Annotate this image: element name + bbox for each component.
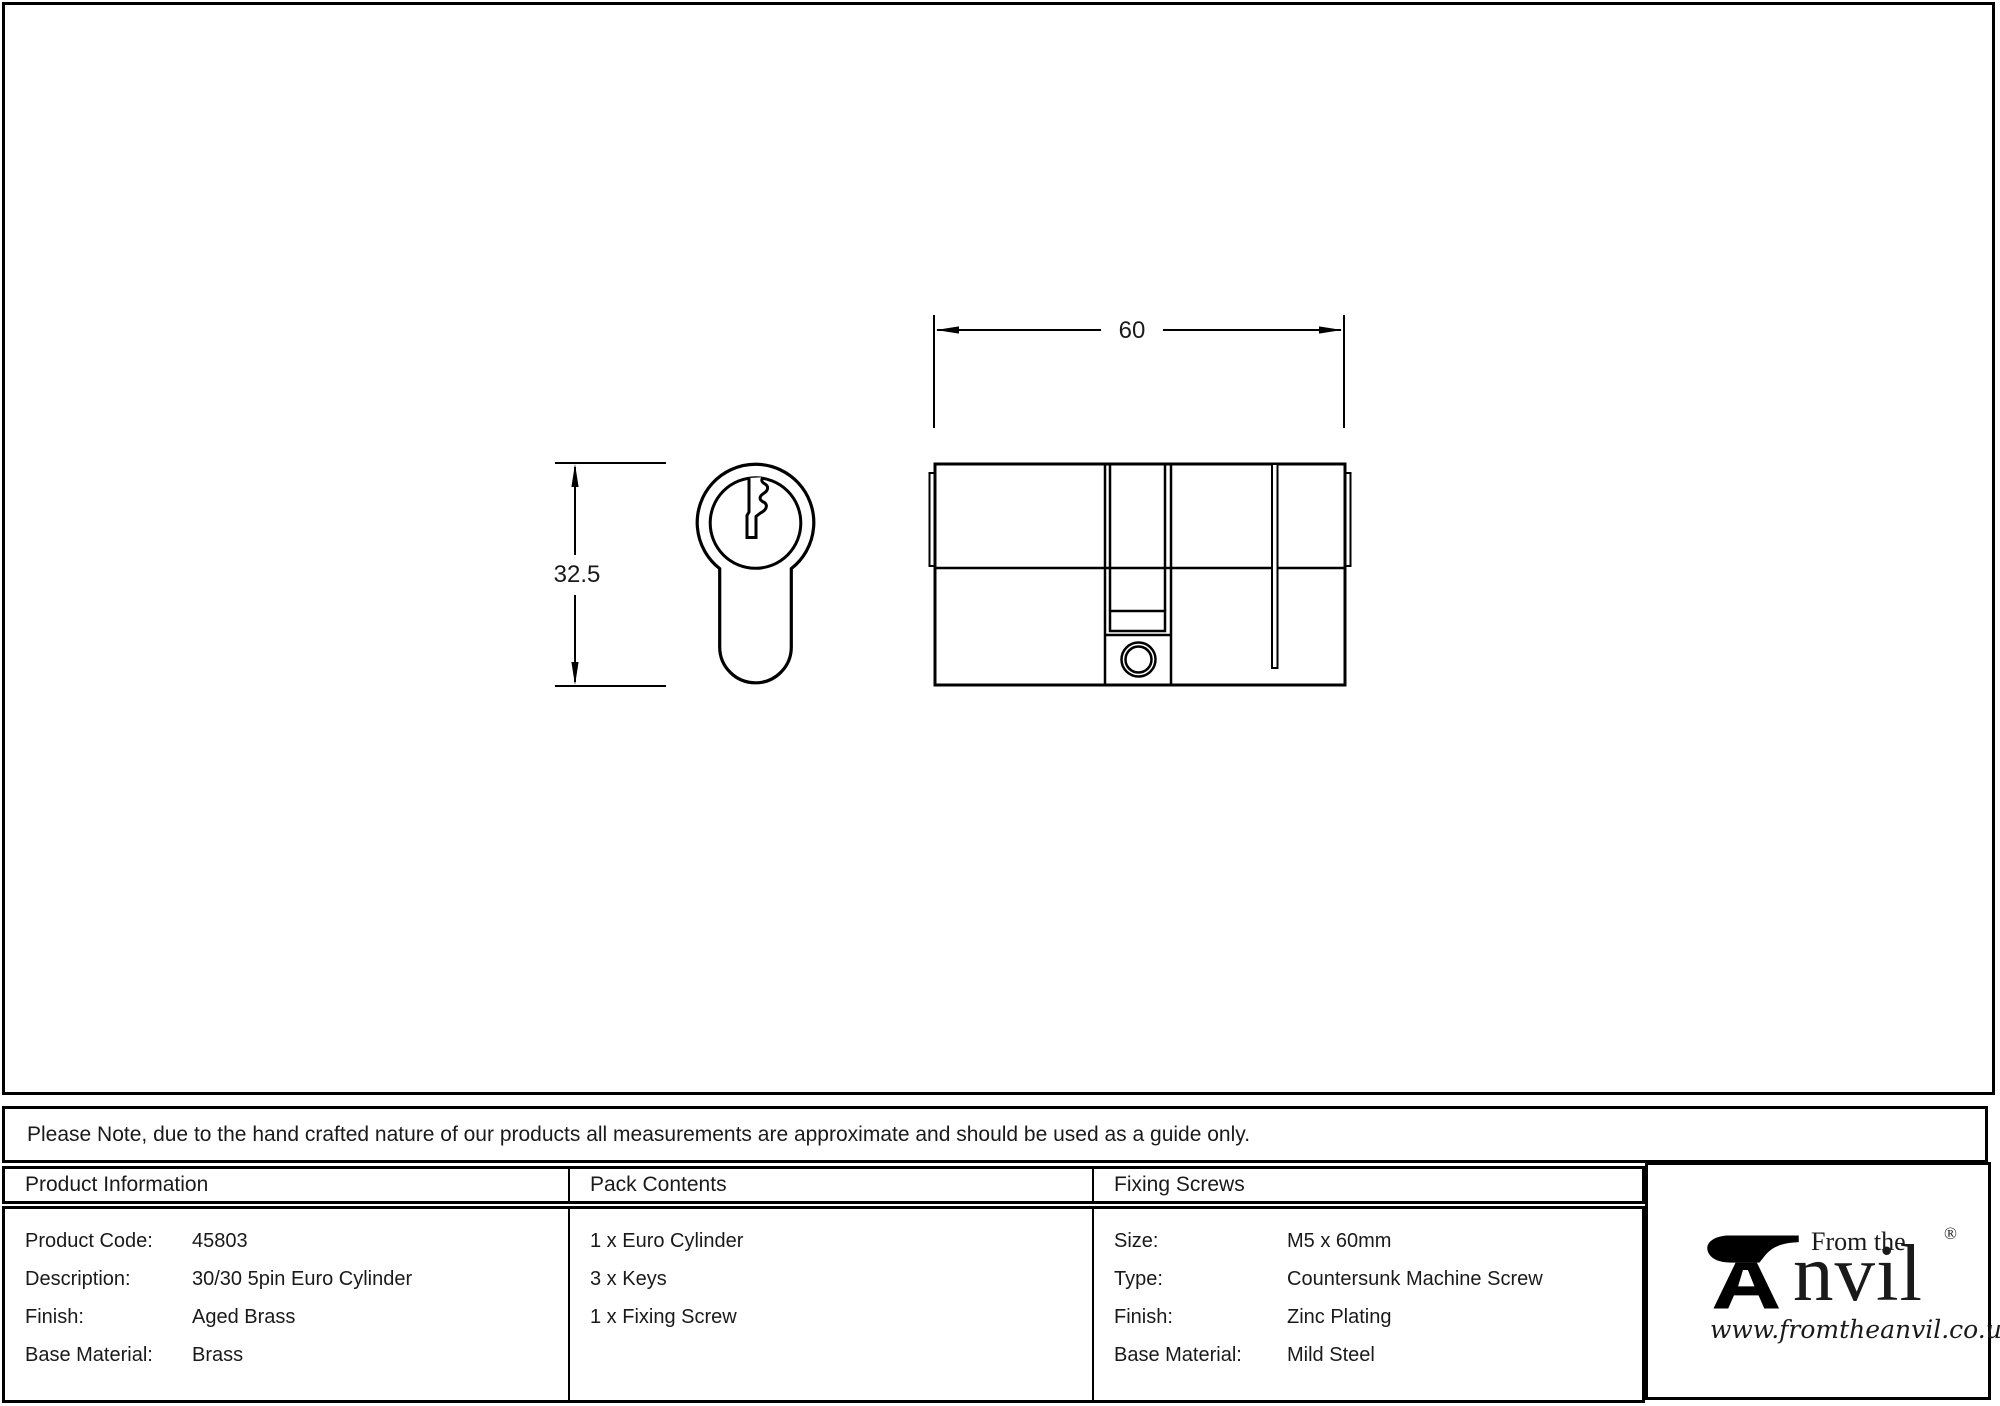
product-information-cell: Product Code: 45803 Description: 30/30 5… [5,1209,570,1400]
cylinder-front-view [697,464,814,683]
spec-label: Product Code: [25,1222,192,1260]
spec-label: Type: [1114,1260,1287,1298]
height-dimension: 32.5 [554,463,666,686]
cylinder-side-view [930,464,1351,685]
pack-item: 3 x Keys [590,1260,1092,1298]
arrowhead-left [936,326,959,333]
spec-label: Base Material: [1114,1336,1287,1374]
spec-label: Size: [1114,1222,1287,1260]
brand-logo-panel: From the nvil ® www.fromtheanvil.co.uk [1645,1162,1991,1400]
width-dimension: 60 [934,315,1344,428]
spec-table-content-row: Product Code: 45803 Description: 30/30 5… [2,1206,1645,1403]
logo-brand-text: nvil [1793,1233,1923,1314]
pack-item: 1 x Fixing Screw [590,1298,1092,1336]
width-dimension-label: 60 [1119,317,1146,344]
spec-row: Product Code: 45803 [25,1222,568,1260]
fixing-screws-cell: Size: M5 x 60mm Type: Countersunk Machin… [1094,1209,1642,1400]
spec-label: Description: [25,1260,192,1298]
registered-trademark-symbol: ® [1944,1225,1957,1242]
spec-row: Base Material: Brass [25,1336,568,1374]
measurement-note-text: Please Note, due to the hand crafted nat… [5,1109,1985,1160]
header-fixing-screws: Fixing Screws [1094,1169,1642,1201]
spec-value: Countersunk Machine Screw [1287,1260,1642,1298]
spec-row: Finish: Aged Brass [25,1298,568,1336]
spec-row: Base Material: Mild Steel [1114,1336,1642,1374]
spec-row: Finish: Zinc Plating [1114,1298,1642,1336]
euro-cylinder-technical-drawing: 32.5 60 [5,5,1995,1092]
pack-contents-cell: 1 x Euro Cylinder 3 x Keys 1 x Fixing Sc… [570,1209,1094,1400]
spec-value: Brass [192,1336,568,1374]
product-spec-sheet: 32.5 60 [0,0,2000,1406]
height-dimension-label: 32.5 [554,561,601,588]
arrowhead-right [1319,326,1342,333]
spec-value: 45803 [192,1222,568,1260]
pack-item: 1 x Euro Cylinder [590,1222,1092,1260]
spec-label: Base Material: [25,1336,192,1374]
header-pack-contents: Pack Contents [570,1169,1094,1201]
spec-label: Finish: [25,1298,192,1336]
spec-value: 30/30 5pin Euro Cylinder [192,1260,568,1298]
fixing-screw-hole-inner [1126,647,1152,673]
spec-table-header-row: Product Information Pack Contents Fixing… [2,1166,1645,1204]
spec-row: Size: M5 x 60mm [1114,1222,1642,1260]
spec-label: Finish: [1114,1298,1287,1336]
spec-value: M5 x 60mm [1287,1222,1642,1260]
spec-value: Aged Brass [192,1298,568,1336]
keyway-slot-line [1272,464,1278,668]
anvil-icon [1702,1229,1802,1311]
logo-website-url: www.fromtheanvil.co.uk [1710,1315,2000,1345]
measurement-note-bar: Please Note, due to the hand crafted nat… [2,1106,1988,1163]
technical-drawing-panel: 32.5 60 [2,2,1995,1095]
cam-plate [1110,611,1165,631]
arrowhead-down [571,662,578,685]
header-product-information: Product Information [5,1169,570,1201]
spec-value: Zinc Plating [1287,1298,1642,1336]
spec-value: Mild Steel [1287,1336,1642,1374]
spec-row: Description: 30/30 5pin Euro Cylinder [25,1260,568,1298]
arrowhead-up [571,464,578,487]
spec-row: Type: Countersunk Machine Screw [1114,1260,1642,1298]
